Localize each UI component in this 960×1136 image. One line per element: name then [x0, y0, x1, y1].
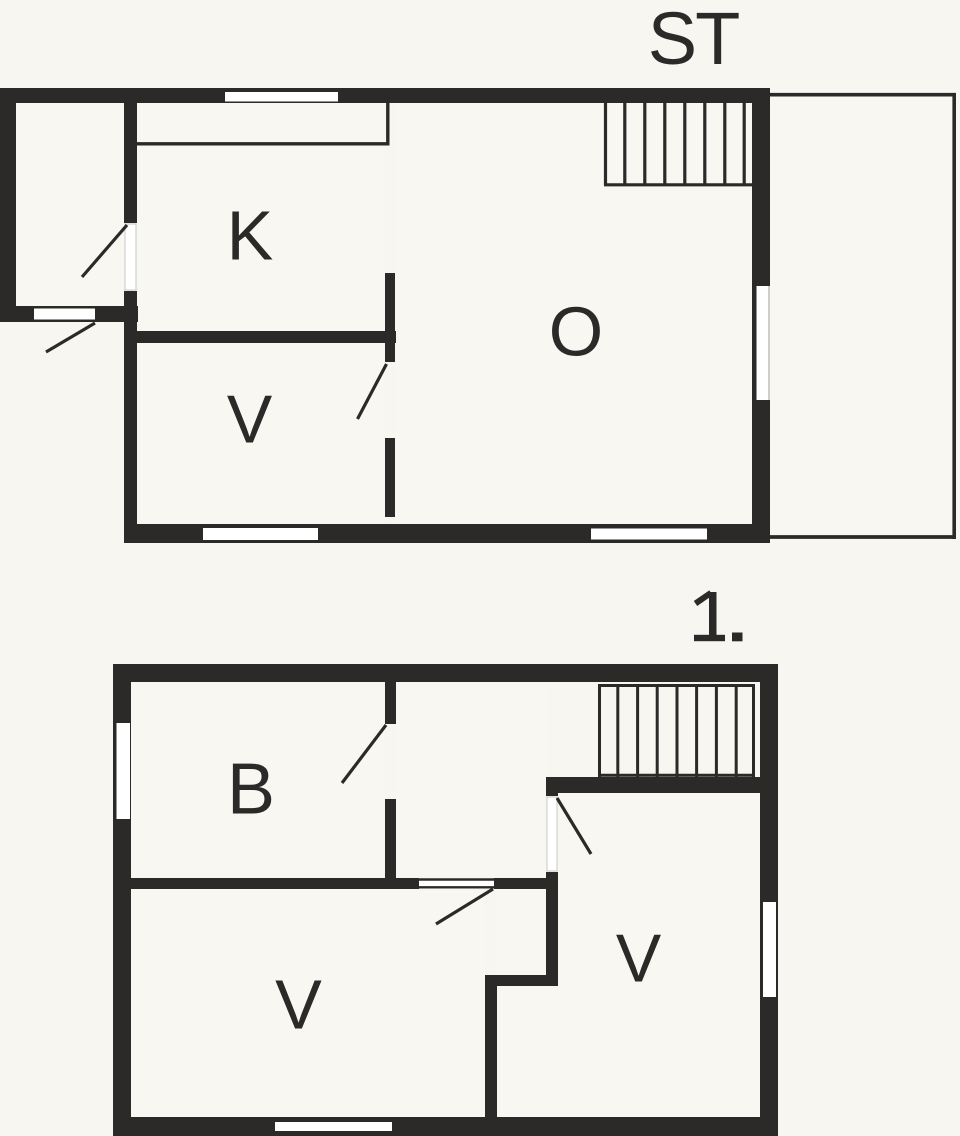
svg-text:V: V [275, 966, 322, 1044]
svg-text:K: K [227, 197, 274, 275]
svg-text:B: B [227, 750, 275, 830]
svg-text:V: V [616, 921, 662, 997]
svg-text:O: O [549, 293, 603, 371]
svg-text:V: V [227, 382, 273, 458]
svg-text:ST: ST [648, 0, 739, 80]
